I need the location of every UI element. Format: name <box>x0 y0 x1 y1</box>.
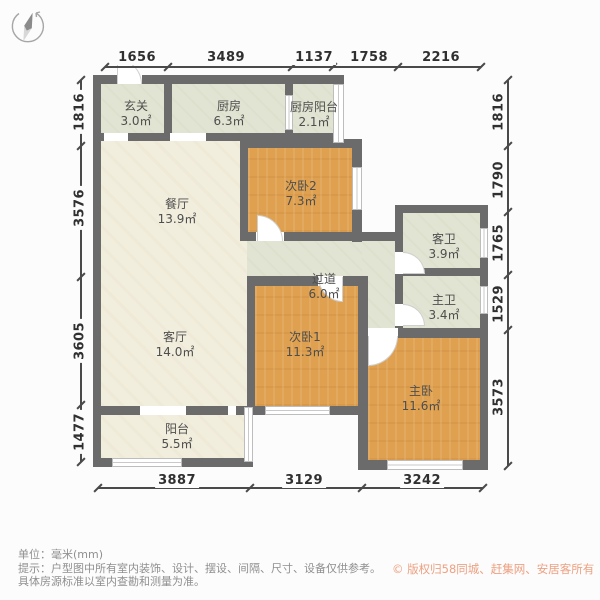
floorplan-canvas: 玄关3.0㎡ 厨房6.3㎡ 厨房阳台2.1㎡ 餐厅13.9㎡ 次卧27.3㎡ 客… <box>0 0 600 600</box>
wall-entry-kitchen-divider <box>164 84 172 133</box>
window-master-bottom <box>387 460 463 470</box>
dim-bottom-0: 3887 <box>155 473 199 488</box>
room-label-balcony: 阳台5.5㎡ <box>161 422 192 452</box>
dim-top-0: 1656 <box>115 50 159 65</box>
dim-right-3: 1529 <box>492 282 507 326</box>
room-label-guest-bath: 客卫3.9㎡ <box>428 232 459 262</box>
disclaimer-line2: 具体房源标准以室内查勘和测量为准。 <box>18 575 381 589</box>
room-label-master-bedroom: 主卧11.6㎡ <box>402 384 441 414</box>
dim-top-3: 1758 <box>347 50 391 65</box>
tick <box>76 457 85 466</box>
dim-right-4: 3573 <box>492 375 507 419</box>
room-label-bedroom1: 次卧111.3㎡ <box>286 330 325 360</box>
dim-right-2: 1765 <box>492 221 507 265</box>
window-bedroom2-right <box>352 167 362 210</box>
dim-left-1: 3576 <box>73 186 88 230</box>
wall-bedroom1-left <box>247 276 255 415</box>
dim-left-2: 3605 <box>73 319 88 363</box>
dim-bottom-1: 3129 <box>282 473 326 488</box>
dim-right-0: 1816 <box>492 90 507 134</box>
dim-left-0: 1816 <box>73 90 88 134</box>
room-label-kitchen-balcony: 厨房阳台2.1㎡ <box>290 100 338 130</box>
wall-left <box>93 75 101 467</box>
dim-left-3: 1477 <box>73 410 88 454</box>
room-label-entry: 玄关3.0㎡ <box>120 99 151 129</box>
window-bedroom1-bottom <box>265 406 330 415</box>
unit-label: 单位：毫米(mm) <box>18 548 381 562</box>
dim-right-1: 1790 <box>492 158 507 202</box>
opening-entry-dining <box>104 133 128 141</box>
window-master-bath-right <box>480 286 488 314</box>
window-balcony-bottom <box>112 458 182 467</box>
wall-bath-top <box>395 205 488 213</box>
dim-top-1: 3489 <box>204 50 248 65</box>
opening-living-balcony <box>140 406 186 415</box>
wall-mid-vertical <box>358 276 368 468</box>
tick <box>476 62 485 71</box>
dim-top-4: 2216 <box>419 50 463 65</box>
dim-bottom-2: 3242 <box>400 473 444 488</box>
copyright-text: © 版权归58同城、赶集网、安居客所有 <box>392 561 594 577</box>
compass-icon <box>6 4 50 48</box>
opening-kitchen-dining <box>170 133 206 141</box>
disclaimer-line1: 提示：户型图中所有室内装饰、设计、摆设、间隔、尺寸、设备仅供参考。 <box>18 562 381 576</box>
wall-bedroom2-left <box>240 139 248 241</box>
opening-guest-bath-door <box>395 252 403 274</box>
window-guest-bath-right <box>480 228 488 258</box>
room-label-master-bath: 主卫3.4㎡ <box>428 293 459 323</box>
footer-notes: 单位：毫米(mm) 提示：户型图中所有室内装饰、设计、摆设、间隔、尺寸、设备仅供… <box>18 548 381 589</box>
opening-living-balcony-2 <box>228 406 236 415</box>
room-dining-living-floor <box>101 133 247 406</box>
room-label-corridor: 过道6.0㎡ <box>308 272 339 302</box>
tick <box>503 461 512 470</box>
room-label-dining: 餐厅13.9㎡ <box>158 197 197 227</box>
dim-top-2: 1137 <box>292 50 336 65</box>
tick <box>478 483 487 492</box>
room-label-bedroom2: 次卧27.3㎡ <box>285 179 317 209</box>
window-balcony-right <box>244 407 253 462</box>
room-label-living: 客厅14.0㎡ <box>156 330 195 360</box>
room-label-kitchen: 厨房6.3㎡ <box>213 99 244 129</box>
opening-master-bath-door <box>395 304 403 326</box>
